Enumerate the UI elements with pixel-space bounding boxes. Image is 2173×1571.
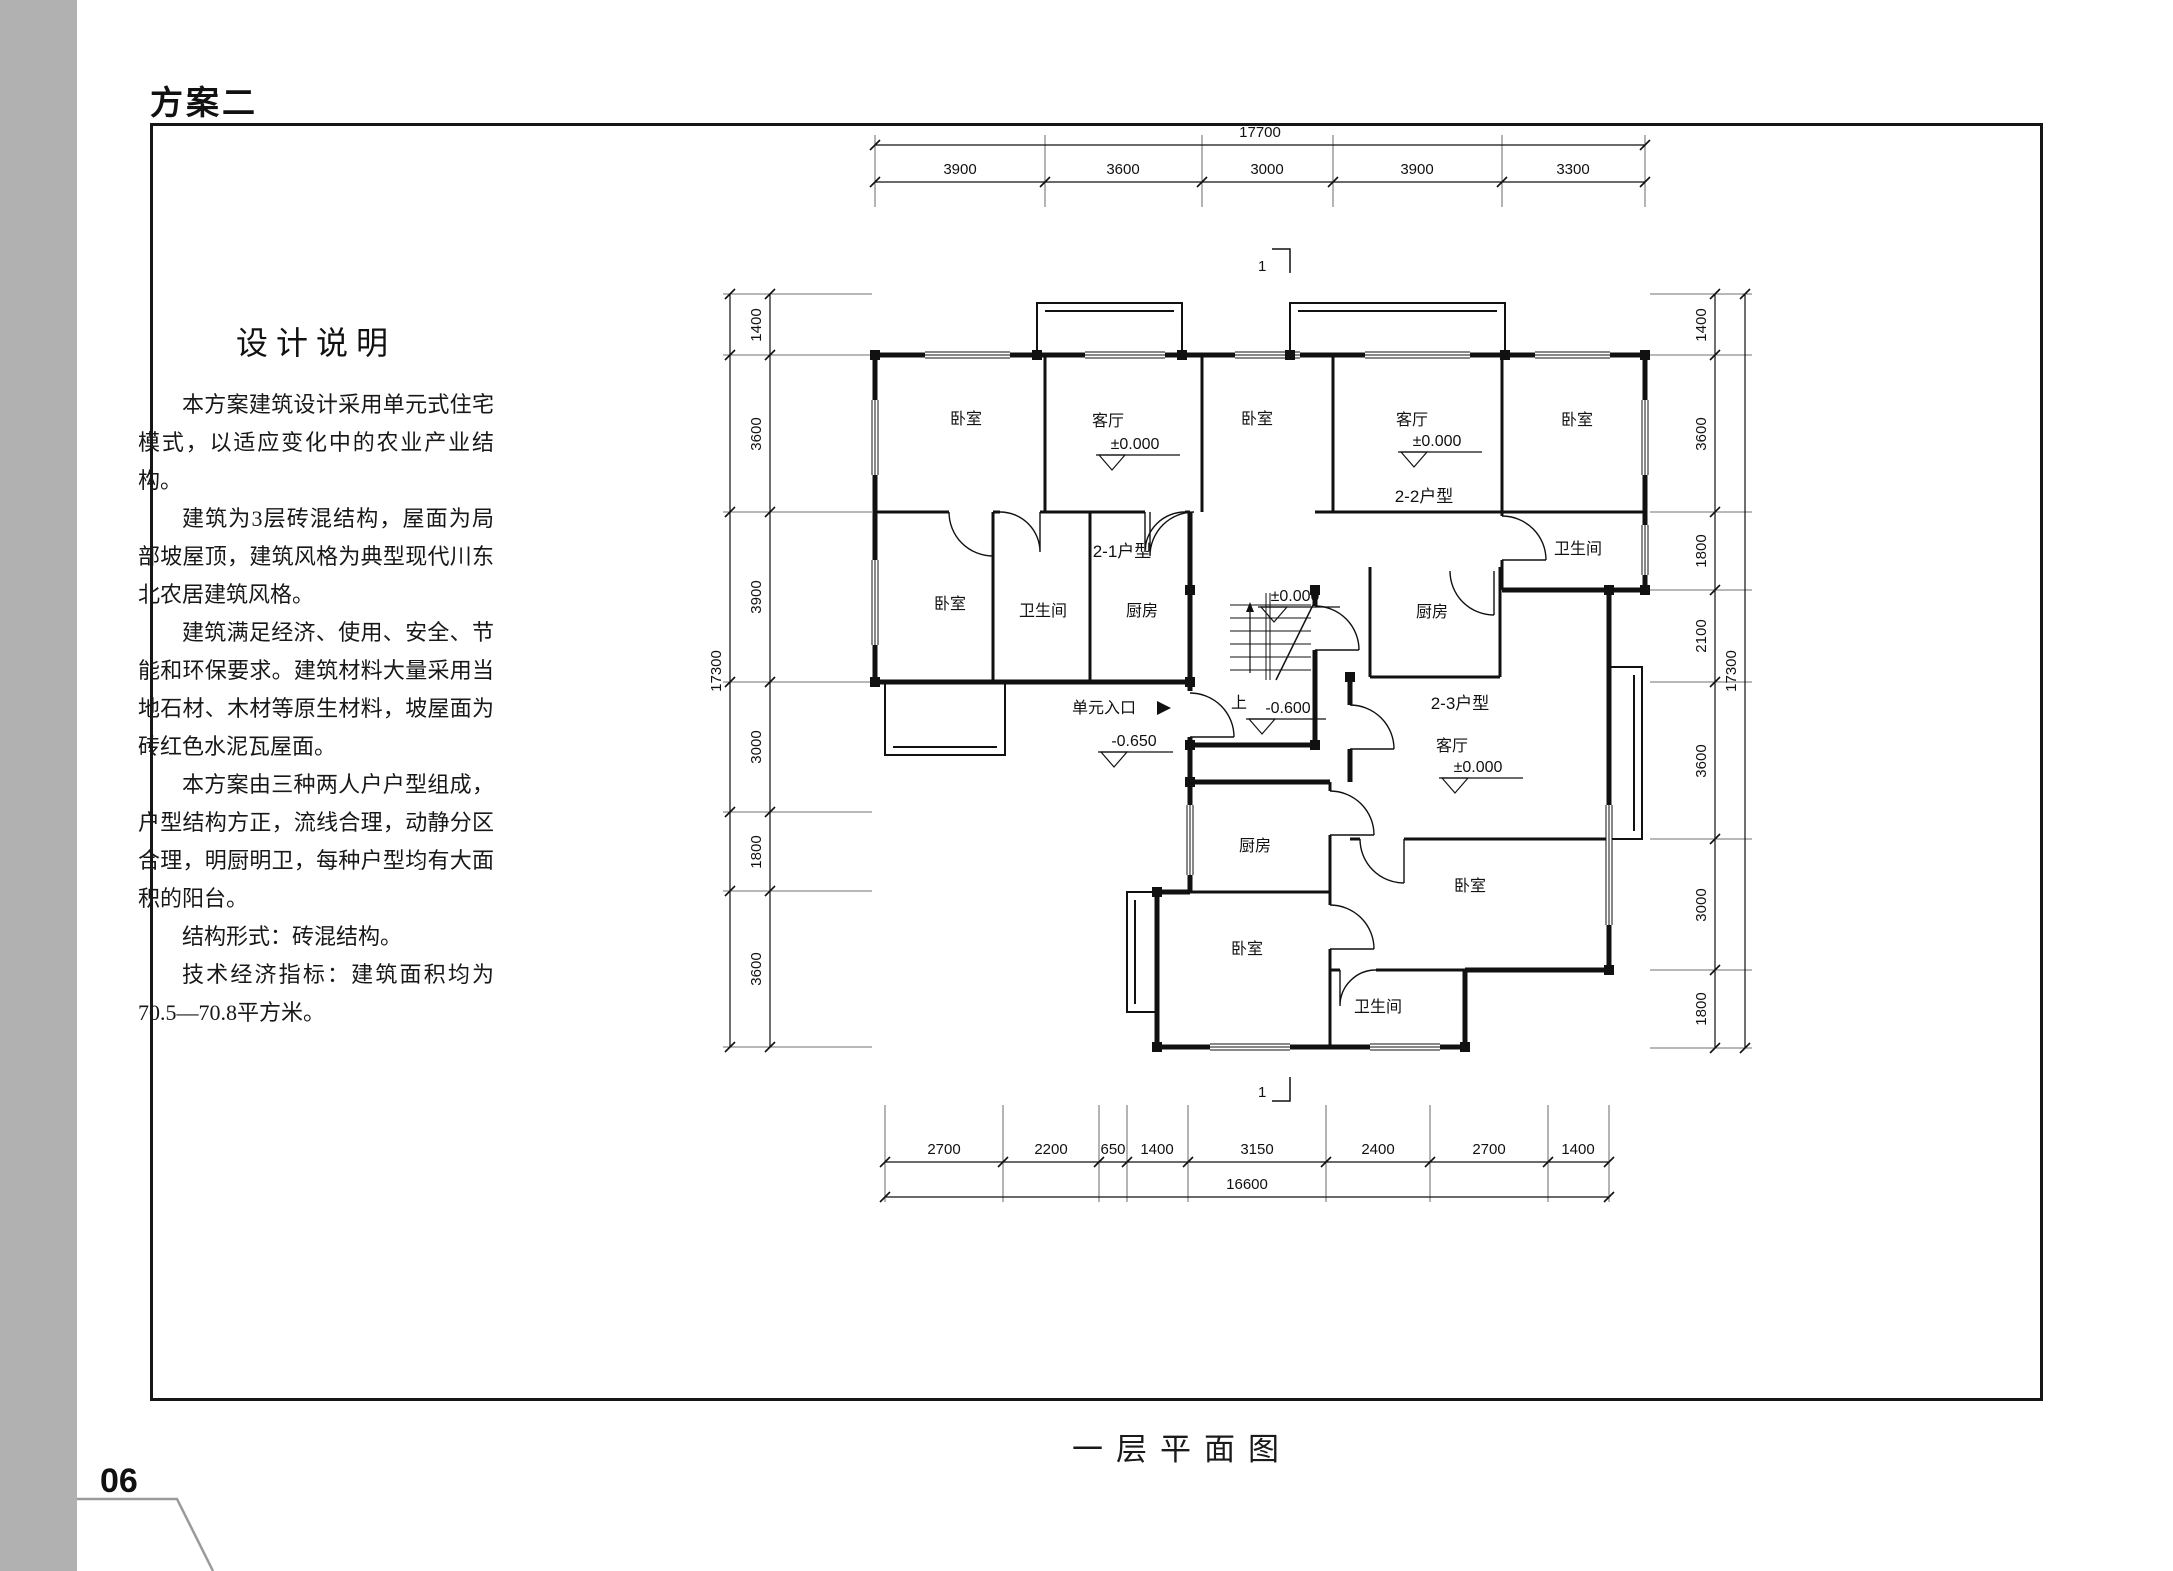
dim-label: 3600 (1693, 417, 1710, 450)
dim-label: 3000 (1693, 888, 1710, 921)
design-note-paragraph: 建筑为3层砖混结构，屋面为局部坡屋顶，建筑风格为典型现代川东北农居建筑风格。 (138, 500, 494, 614)
stairs (1230, 593, 1313, 680)
dim-label: 3600 (748, 952, 765, 985)
level-label: ±0.000 (1111, 436, 1160, 453)
dim-label: 3900 (1400, 161, 1433, 178)
dimension-lines (730, 145, 1745, 1197)
dim-label: 3000 (1250, 161, 1283, 178)
dim-label: 1400 (1140, 1141, 1173, 1158)
floor-plan: 17700 3900 3600 3000 3900 3300 17300 140… (710, 105, 1810, 1230)
room-label-living: 客厅 (1092, 412, 1124, 430)
room-label-bedroom: 卧室 (934, 595, 966, 613)
dim-label: 2100 (1693, 619, 1710, 652)
room-label-bath: 卫生间 (1019, 602, 1067, 620)
level-label: -0.650 (1111, 733, 1156, 750)
level-label: 上 (1231, 694, 1247, 712)
dim-label: 2400 (1361, 1141, 1394, 1158)
design-note-paragraph: 技术经济指标：建筑面积均为70.5—70.8平方米。 (138, 956, 494, 1032)
dim-label: 1400 (1561, 1141, 1594, 1158)
dim-label: 3000 (748, 730, 765, 763)
room-label-bedroom: 卧室 (1241, 410, 1273, 428)
dim-label: 3600 (1106, 161, 1139, 178)
level-label: -0.600 (1265, 700, 1310, 717)
dim-label: 650 (1100, 1141, 1125, 1158)
entrance-label: 单元入口 (1072, 699, 1136, 717)
floor-plan-svg: 17700 3900 3600 3000 3900 3300 17300 140… (710, 105, 1810, 1230)
design-note-paragraph: 建筑满足经济、使用、安全、节能和环保要求。建筑材料大量采用当地石材、木材等原生材… (138, 614, 494, 766)
dim-label: 3300 (1556, 161, 1589, 178)
level-label: ±0.000 (1454, 759, 1503, 776)
unit-label: 2-2户型 (1395, 487, 1454, 506)
unit-label: 2-3户型 (1431, 694, 1490, 713)
dim-label: 3900 (748, 580, 765, 613)
dim-label: 1800 (748, 835, 765, 868)
dim-label: 1800 (1693, 992, 1710, 1025)
dim-label: 2700 (1472, 1141, 1505, 1158)
room-label-bath: 卫生间 (1354, 998, 1402, 1016)
design-note-paragraph: 本方案建筑设计采用单元式住宅模式，以适应变化中的农业产业结构。 (138, 386, 494, 500)
dim-label: 16600 (1226, 1176, 1268, 1193)
design-note-paragraph: 结构形式：砖混结构。 (138, 918, 494, 956)
design-notes: 设计说明 本方案建筑设计采用单元式住宅模式，以适应变化中的农业产业结构。 建筑为… (138, 318, 494, 1032)
dimension-labels: 17700 3900 3600 3000 3900 3300 17300 140… (710, 124, 1740, 1193)
dim-label: 2200 (1034, 1141, 1067, 1158)
level-label: ±0.000 (1413, 433, 1462, 450)
dim-label: 3600 (1693, 744, 1710, 777)
design-notes-title: 设计说明 (138, 318, 494, 364)
dim-label: 2700 (927, 1141, 960, 1158)
room-label-living: 客厅 (1436, 737, 1468, 755)
room-label-bedroom: 卧室 (1561, 411, 1593, 429)
dim-label: 1800 (1693, 534, 1710, 567)
dimension-ticks (725, 140, 1750, 1202)
dim-label: 1400 (1693, 308, 1710, 341)
dim-label: 17300 (710, 650, 725, 692)
room-label-kitchen: 厨房 (1416, 603, 1448, 621)
room-label-bath: 卫生间 (1554, 540, 1602, 558)
dim-label: 3600 (748, 417, 765, 450)
level-label: ±0.000 (1271, 588, 1320, 605)
document-page: 方案二 设计说明 本方案建筑设计采用单元式住宅模式，以适应变化中的农业产业结构。… (0, 0, 2173, 1571)
page-title: 方案二 (150, 76, 258, 124)
unit-entrance: 单元入口 (1072, 699, 1171, 717)
dim-label: 3900 (943, 161, 976, 178)
dim-label: 17700 (1239, 124, 1281, 141)
entrance-arrow-icon (1157, 701, 1171, 715)
room-label-bedroom: 卧室 (950, 410, 982, 428)
corner-decoration (0, 1490, 260, 1571)
room-label-bedroom: 卧室 (1231, 940, 1263, 958)
dim-label: 1400 (748, 308, 765, 341)
room-label-kitchen: 厨房 (1126, 602, 1158, 620)
left-gray-bar (0, 0, 77, 1571)
section-marker-label: 1 (1258, 258, 1266, 275)
dim-label: 17300 (1723, 650, 1740, 692)
room-label-kitchen: 厨房 (1239, 837, 1271, 855)
dim-label: 3150 (1240, 1141, 1273, 1158)
section-marker-label: 1 (1258, 1084, 1266, 1101)
design-note-paragraph: 本方案由三种两人户户型组成，户型结构方正，流线合理，动静分区合理，明厨明卫，每种… (138, 766, 494, 918)
section-markers: 1 1 (1258, 249, 1290, 1101)
room-label-living: 客厅 (1396, 411, 1428, 429)
room-label-bedroom: 卧室 (1454, 877, 1486, 895)
figure-caption: 一层平面图 (1072, 1424, 1292, 1469)
unit-label: 2-1户型 (1093, 542, 1152, 561)
